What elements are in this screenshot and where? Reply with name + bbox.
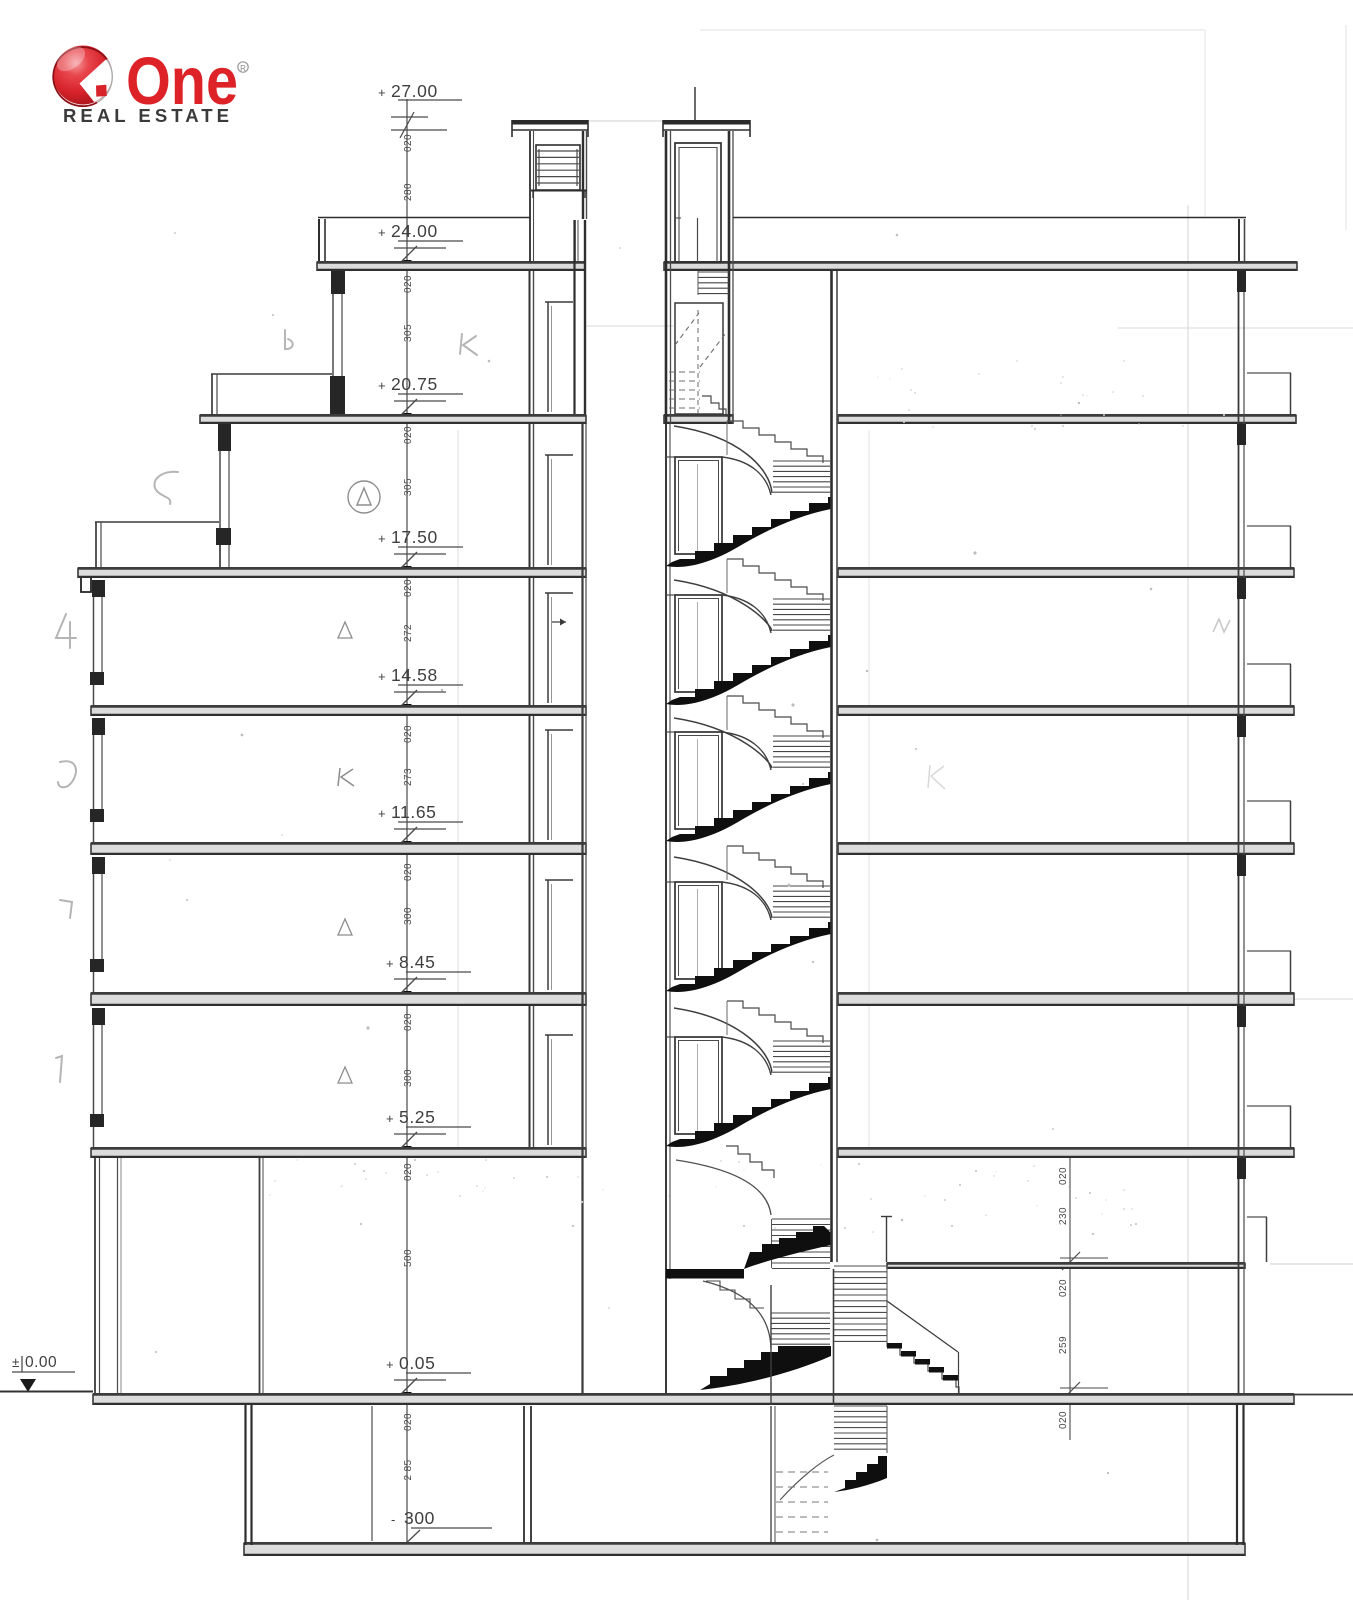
svg-text:17.50: 17.50 xyxy=(391,527,438,547)
svg-text:+: + xyxy=(378,378,386,393)
svg-text:305: 305 xyxy=(403,324,414,342)
svg-text:020: 020 xyxy=(403,1413,414,1431)
svg-text:273: 273 xyxy=(403,768,414,786)
svg-text:REAL ESTATE: REAL ESTATE xyxy=(63,105,233,126)
svg-text:+: + xyxy=(386,1357,394,1372)
svg-text:+: + xyxy=(378,85,386,100)
svg-text:020: 020 xyxy=(403,1163,414,1181)
svg-text:14.58: 14.58 xyxy=(391,665,438,685)
svg-text:272: 272 xyxy=(403,624,414,642)
svg-text:230: 230 xyxy=(1058,1207,1069,1225)
svg-text:+: + xyxy=(386,1111,394,1126)
svg-text:020: 020 xyxy=(403,725,414,743)
svg-text:300: 300 xyxy=(403,907,414,925)
svg-text:11.65: 11.65 xyxy=(391,802,437,822)
svg-text:±: ± xyxy=(12,1355,20,1370)
svg-text:020: 020 xyxy=(403,426,414,444)
svg-text:020: 020 xyxy=(403,1013,414,1031)
svg-text:+: + xyxy=(378,225,386,240)
svg-text:5.25: 5.25 xyxy=(399,1107,435,1127)
svg-text:305: 305 xyxy=(403,478,414,496)
svg-text:+: + xyxy=(378,669,386,684)
svg-text:27.00: 27.00 xyxy=(391,81,438,101)
svg-text:500: 500 xyxy=(403,1249,414,1267)
svg-text:+: + xyxy=(378,806,386,821)
svg-text:020: 020 xyxy=(403,134,414,152)
svg-text:300: 300 xyxy=(404,1508,435,1528)
svg-text:2 85: 2 85 xyxy=(403,1459,414,1480)
svg-text:020: 020 xyxy=(1058,1167,1069,1185)
svg-text:0.05: 0.05 xyxy=(399,1353,435,1373)
svg-text:+: + xyxy=(378,531,386,546)
svg-text:0.00: 0.00 xyxy=(25,1354,57,1371)
svg-text:259: 259 xyxy=(1058,1336,1069,1354)
svg-text:020: 020 xyxy=(403,579,414,597)
svg-text:24.00: 24.00 xyxy=(391,221,438,241)
svg-text:R: R xyxy=(240,64,246,73)
svg-text:-: - xyxy=(391,1512,396,1527)
svg-text:020: 020 xyxy=(403,275,414,293)
svg-text:280: 280 xyxy=(403,183,414,201)
svg-text:8.45: 8.45 xyxy=(399,952,435,972)
svg-text:300: 300 xyxy=(403,1069,414,1087)
svg-text:+: + xyxy=(386,956,394,971)
svg-text:20.75: 20.75 xyxy=(391,374,438,394)
svg-text:020: 020 xyxy=(1058,1279,1069,1297)
svg-text:020: 020 xyxy=(403,863,414,881)
svg-text:020: 020 xyxy=(1058,1411,1069,1429)
